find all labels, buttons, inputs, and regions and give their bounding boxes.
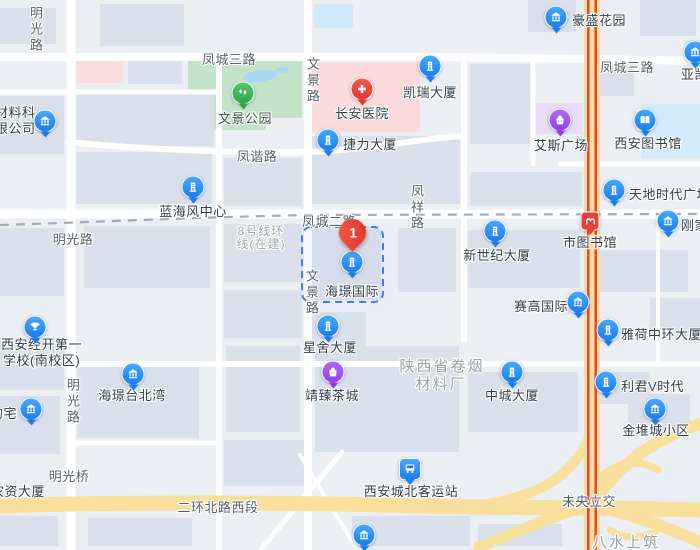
road-label-fengcheng3-west: 凤城三路 [202, 49, 256, 68]
poi-label-cailiao-line1[interactable]: 材料科 [0, 105, 36, 120]
metro-line8-note-line2: 线(在建) [237, 235, 286, 252]
poi-label-jingkai-school-line1[interactable]: 西安经开第一 [1, 337, 82, 352]
poi-marker-jingkai-school[interactable] [24, 316, 47, 339]
poi-marker-zhongcheng-dasha[interactable] [501, 361, 524, 384]
pin-number: 1 [348, 225, 356, 241]
area-label-wenjing-park: 文景公园 [218, 108, 272, 127]
road-label-mingguang-bottom: 明光路 [63, 378, 82, 426]
poi-label-haijing-guoji[interactable]: 海璟国际 [325, 281, 379, 300]
building-icon [608, 184, 621, 197]
building-icon [322, 320, 335, 333]
bank-icon [25, 403, 38, 416]
road-label-wenjing-top: 文景路 [303, 57, 322, 105]
road-label-mingguang-bridge: 明光桥 [49, 466, 90, 485]
building-icon [602, 324, 615, 337]
poi-label-lijun-v[interactable]: 利君V时代 [621, 376, 684, 395]
poi-label-jieli-dasha[interactable]: 捷力大厦 [343, 134, 397, 153]
bank-icon [127, 368, 140, 381]
road-label-wenjing-mid: 文景路 [302, 269, 321, 317]
poi-marker-chengbei-bus-station[interactable] [399, 458, 421, 480]
bank-icon [358, 529, 371, 542]
road-label-fengxiang: 凤祥路 [407, 184, 426, 232]
road-label-fengcheng3-east: 凤城三路 [600, 57, 654, 76]
building-icon [424, 60, 437, 73]
trophy-icon [29, 321, 42, 334]
bank-icon [649, 403, 662, 416]
poi-marker-jingzhen-chacheng[interactable] [322, 361, 345, 384]
poi-marker-xinshiji-dasha[interactable] [484, 220, 507, 243]
poi-label-gangjia[interactable]: 刚家 [681, 215, 700, 234]
poi-marker-tiandi-shidai[interactable] [603, 179, 626, 202]
poi-marker-yahe-zhonghuan[interactable] [597, 319, 620, 342]
poi-marker-city-library-station[interactable] [581, 212, 600, 231]
area-label-cigarette-factory-line2: 材料厂 [415, 373, 466, 394]
poi-label-tiandi-shidai[interactable]: 天地时代广场 [629, 184, 700, 203]
bank-icon [572, 296, 585, 309]
poi-label-cailiao-line2[interactable]: 限公司 [0, 121, 36, 136]
bank-icon [662, 215, 675, 228]
poi-marker-yuezhai[interactable] [20, 398, 43, 421]
poi-marker-haosheng-huayuan[interactable] [545, 6, 568, 29]
metro-icon [584, 215, 596, 227]
road-label-mingguang-mid: 明光路 [53, 229, 94, 248]
poi-marker-haijing-guoji[interactable] [341, 251, 364, 274]
bank-icon [550, 11, 563, 24]
poi-marker-xian-library[interactable] [634, 109, 657, 132]
bank-icon [39, 115, 52, 128]
poi-marker-jinduicheng[interactable] [644, 398, 667, 421]
poi-marker-kairui-dasha[interactable] [419, 55, 442, 78]
poi-label-jingkai-school-line2[interactable]: 学校(南校区) [3, 353, 80, 368]
road-label-fengxie: 凤谐路 [237, 146, 278, 165]
poi-marker-lanhaifeng-center[interactable] [182, 176, 205, 199]
road-label-erhuan-north: 二环北路西段 [177, 497, 258, 516]
poi-label-yuezhai[interactable]: 约宅 [0, 403, 17, 422]
poi-label-kairui-dasha[interactable]: 凯瑞大厦 [403, 82, 457, 101]
poi-marker-aisi-plaza[interactable] [549, 109, 572, 132]
poi-marker-haijingtai-beiwan[interactable] [122, 363, 145, 386]
poi-marker-wenjing-park[interactable] [232, 82, 255, 105]
building-icon [600, 376, 613, 389]
poi-marker-changan-hospital[interactable] [351, 78, 374, 101]
hospital-cross-icon [356, 83, 369, 96]
shopping-bag-icon [554, 114, 567, 127]
poi-label-changan-hospital[interactable]: 长安医院 [335, 103, 389, 122]
poi-label-aisi-plaza[interactable]: 艾斯广场 [534, 135, 588, 154]
building-icon [322, 134, 335, 147]
shopping-bag-icon [327, 366, 340, 379]
poi-label-haosheng-huayuan[interactable]: 豪盛花园 [572, 10, 626, 29]
poi-marker-cailiao-company[interactable] [34, 110, 57, 133]
poi-label-nongzi-dasha[interactable]: 农资大厦 [0, 481, 45, 500]
poi-label-yahe-zhonghuan[interactable]: 雅荷中环大厦 [621, 324, 700, 343]
poi-marker-saigao-guoji[interactable] [567, 291, 590, 314]
poi-marker-unlabeled[interactable] [353, 524, 376, 547]
road-label-weiyang-interchange: 未央立交 [562, 491, 616, 510]
map-canvas[interactable]: 明光路 凤城三路 文景路 凤谐路 明光路 凤城二路 凤祥路 凤城三路 文景路 明… [0, 0, 700, 550]
poi-marker-yakai[interactable] [684, 41, 700, 64]
park-trees-icon [237, 87, 250, 100]
building-icon [346, 256, 359, 269]
building-icon [506, 366, 519, 379]
poi-marker-gangjia[interactable] [657, 210, 680, 233]
poi-marker-lijun-v[interactable] [595, 371, 618, 394]
building-icon [187, 181, 200, 194]
poi-label-saigao-guoji[interactable]: 赛高国际 [514, 296, 568, 315]
book-icon [639, 114, 652, 127]
poi-label-city-library-station[interactable]: 市图书馆 [563, 232, 617, 251]
poi-marker-jieli-dasha[interactable] [317, 129, 340, 152]
poi-label-xinshiji-dasha[interactable]: 新世纪大厦 [463, 245, 531, 264]
poi-label-lanhaifeng-center[interactable]: 蓝海风中心 [159, 201, 227, 220]
building-icon [489, 225, 502, 238]
bank-icon [689, 46, 700, 59]
poi-marker-xingshe-dasha[interactable] [317, 315, 340, 338]
road-label-mingguang-top: 明光路 [26, 6, 45, 54]
bus-icon [403, 462, 417, 476]
area-label-bashui: 八水上筑 [592, 531, 660, 550]
